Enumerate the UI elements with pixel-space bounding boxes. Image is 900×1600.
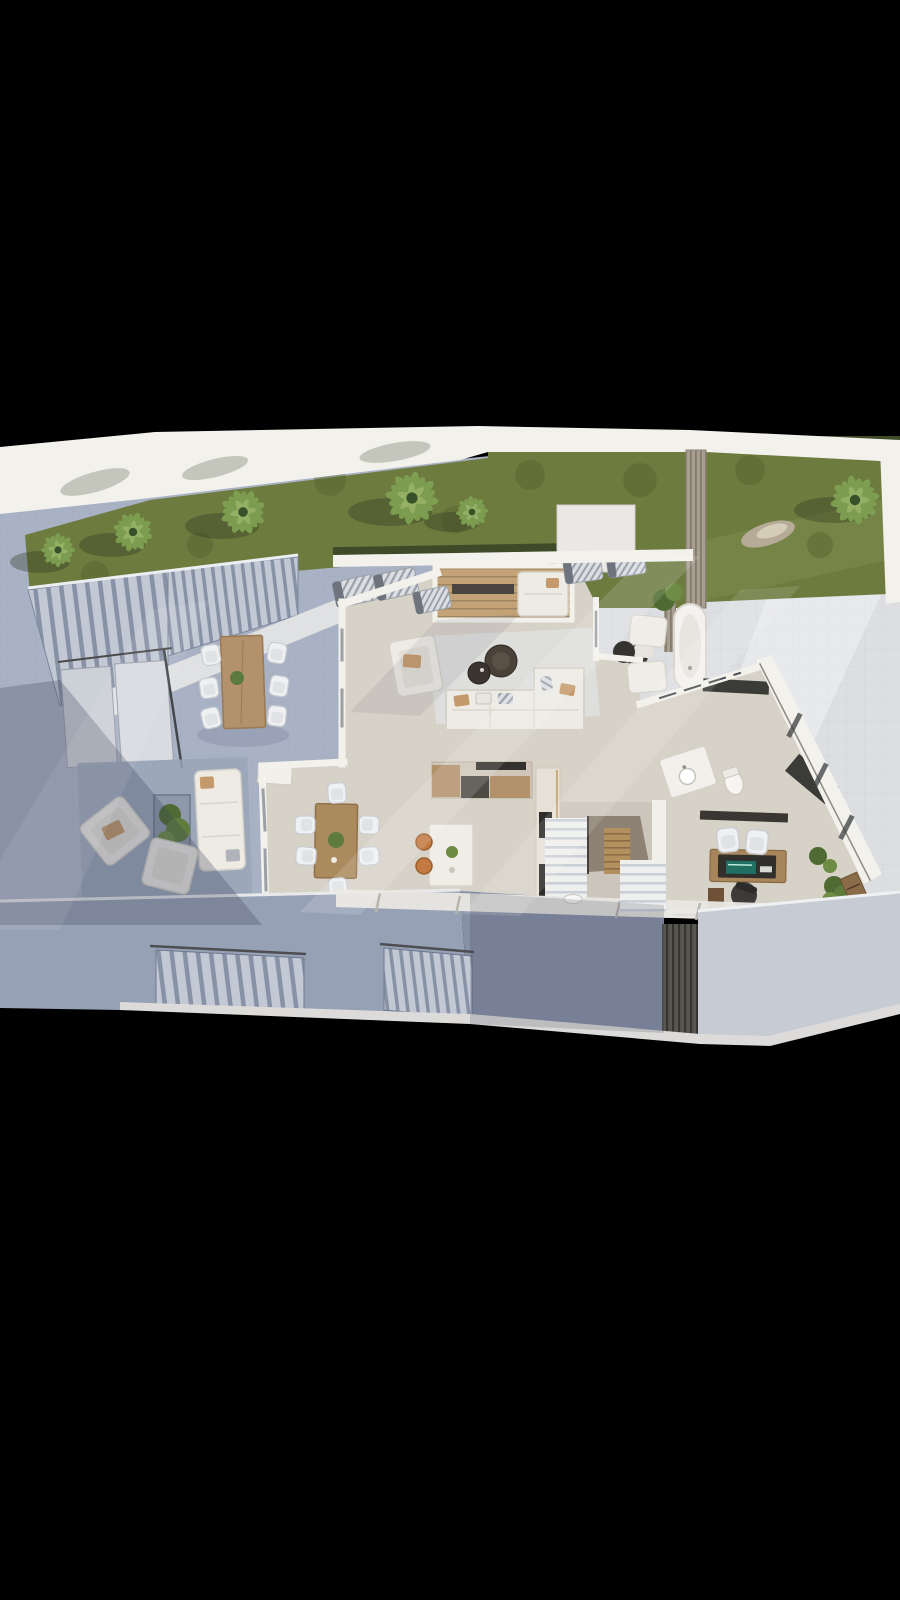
palm-tree xyxy=(41,533,75,567)
deck-counter xyxy=(452,584,514,594)
sofa-pillow xyxy=(476,693,491,704)
dining-chair xyxy=(327,782,346,803)
outdoor-dining-chair xyxy=(266,642,287,665)
floor-plan-render xyxy=(0,0,900,1600)
slatted-pillar xyxy=(662,924,698,1036)
dining-chair xyxy=(295,816,315,834)
island-plant xyxy=(446,846,458,858)
black-bottom-crop xyxy=(0,1008,900,1600)
street-stairs-mid xyxy=(380,944,474,1018)
outdoor-dining-set xyxy=(197,635,290,747)
covered-deck-nook xyxy=(435,566,572,620)
deck-sofa xyxy=(518,572,568,616)
desk-screen xyxy=(726,861,756,875)
office-desk xyxy=(710,849,787,882)
outdoor-dining-chair xyxy=(200,644,221,667)
dining-centerpiece xyxy=(328,832,344,848)
render-canvas xyxy=(0,0,900,1600)
outdoor-dining-chair xyxy=(268,675,289,698)
table-centerpiece-plant xyxy=(230,671,244,685)
outdoor-dining-chair xyxy=(199,677,220,699)
sofa-pillow xyxy=(453,694,469,707)
dining-chair xyxy=(359,816,380,835)
outdoor-dining-chair xyxy=(267,705,287,727)
dining-chair xyxy=(295,846,316,865)
office-guest-chair xyxy=(716,827,740,853)
wall-dining-north xyxy=(262,762,344,766)
office-guest-chair xyxy=(745,829,769,855)
privacy-slat-wall xyxy=(686,450,706,608)
